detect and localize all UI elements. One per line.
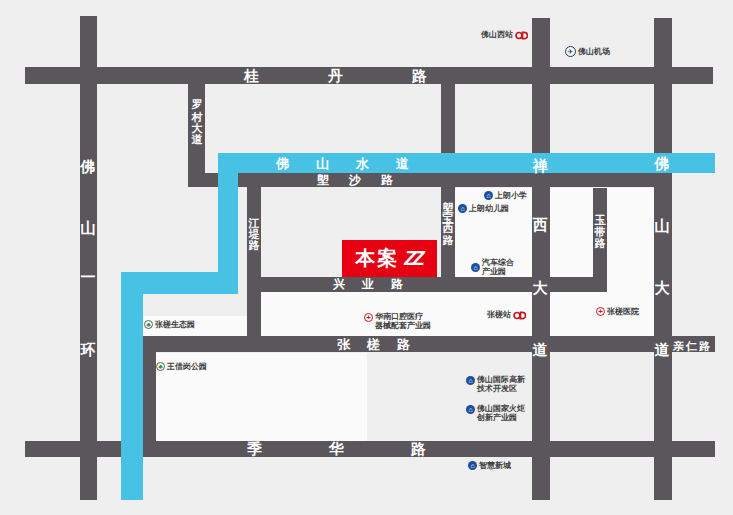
poi-torch-innovation-park: ⌂ 佛山国家火炬创新产业园 bbox=[466, 405, 525, 422]
poi-shanglang-kindergarten: ⌂ 上朗幼儿园 bbox=[458, 204, 509, 213]
park-tree-icon: ♣ bbox=[156, 362, 165, 371]
road-label-guidanlu: 桂丹路 bbox=[244, 68, 496, 85]
industry-park-icon: ⌂ bbox=[471, 263, 480, 272]
road-label-foshandadao: 佛山大道 bbox=[655, 144, 670, 392]
park-tree-icon: ♣ bbox=[144, 320, 153, 329]
poi-foshan-airport: ✈ 佛山机场 bbox=[565, 46, 610, 57]
location-map: 桂丹路 佛山水道 塱沙路 兴业路 张槎路 亲仁路 季华路 佛山一环 罗村大道 江… bbox=[0, 0, 733, 515]
project-marker: 本案 ZZ bbox=[342, 240, 437, 277]
road-label-qinrenlu: 亲仁路 bbox=[673, 340, 712, 352]
poi-smart-city: ⌂ 智慧新城 bbox=[468, 461, 511, 470]
road-xingyelu bbox=[247, 277, 607, 292]
poi-shanglang-primary-school: ⌂ 上朗小学 bbox=[484, 191, 527, 200]
road-label-jihualu: 季华路 bbox=[247, 441, 493, 458]
brand-logo: ZZ bbox=[404, 247, 423, 270]
poi-zhangcha-eco-park: ♣ 张槎生态园 bbox=[144, 320, 195, 329]
project-marker-label: 本案 bbox=[355, 245, 399, 272]
high-speed-rail-icon bbox=[515, 26, 528, 44]
metro-rail-icon bbox=[513, 306, 526, 324]
poi-zhangcha-station: 张槎站 bbox=[487, 306, 526, 324]
school-icon: ⌂ bbox=[484, 191, 493, 200]
road-label-jiangdilu: 江堤路 bbox=[248, 208, 259, 241]
kindergarten-icon: ⌂ bbox=[458, 204, 467, 213]
road-label-yudailu: 玉带路 bbox=[594, 206, 605, 239]
smart-city-icon: ⌂ bbox=[468, 461, 477, 470]
road-langbaoxilu bbox=[441, 84, 455, 292]
road-jiangdilu bbox=[247, 173, 261, 352]
poi-foshan-west-station: 佛山西站 bbox=[481, 26, 528, 44]
road-label-zhangchalu: 张槎路 bbox=[337, 338, 427, 352]
poi-wangjiegang-park: ♣ 王借岗公园 bbox=[156, 362, 207, 371]
road-label-langbaoxilu: 塱宝西路 bbox=[442, 192, 453, 236]
poi-dental-equipment-park: + 华南口腔医疗器械配套产业园 bbox=[364, 313, 431, 330]
poi-hi-tech-zone: ⌂ 佛山国际高新技术开发区 bbox=[466, 376, 525, 393]
road-label-foshanyihuan: 佛山一环 bbox=[81, 147, 96, 391]
river-vertical-2 bbox=[121, 272, 143, 500]
road-zhangchalu bbox=[140, 336, 715, 352]
development-zone-icon: ⌂ bbox=[466, 376, 475, 385]
road-label-xingyelu: 兴业路 bbox=[333, 278, 420, 291]
airplane-icon: ✈ bbox=[565, 46, 576, 57]
hospital-cross-icon: + bbox=[596, 307, 605, 316]
medical-cross-icon: + bbox=[364, 313, 373, 322]
road-label-langshalu: 塱沙路 bbox=[317, 174, 413, 187]
poi-auto-industry-park: ⌂ 汽车综合产业园 bbox=[471, 259, 514, 276]
road-label-chanxidadao: 禅西大道 bbox=[533, 144, 548, 392]
waterway-label: 佛山水道 bbox=[276, 157, 436, 171]
poi-zhangcha-hospital: + 张槎医院 bbox=[596, 307, 639, 316]
road-langshalu bbox=[188, 173, 672, 187]
road-label-luocundadao: 罗村大道 bbox=[191, 91, 202, 135]
innovation-park-icon: ⌂ bbox=[466, 405, 475, 414]
